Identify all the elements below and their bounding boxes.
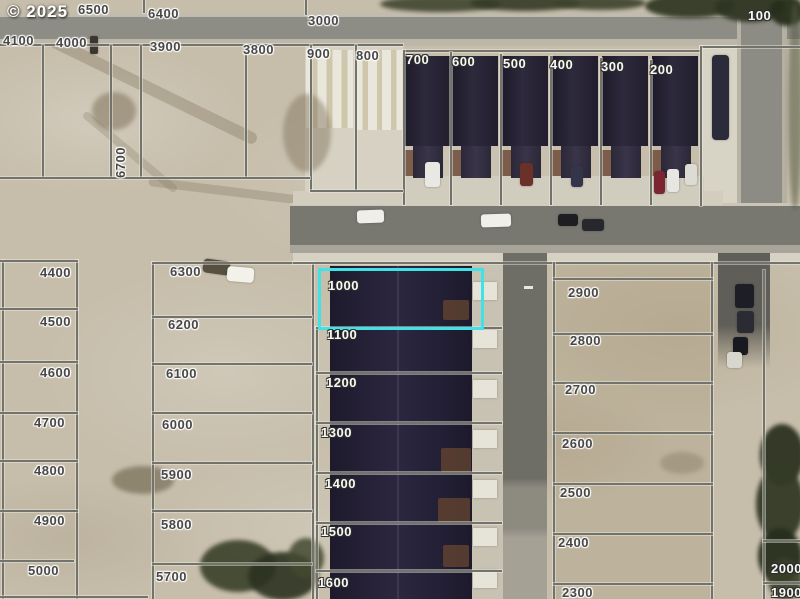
garage-roof bbox=[611, 146, 641, 178]
parcel-boundary-line bbox=[0, 510, 78, 512]
parcel-label-4500: 4500 bbox=[40, 315, 71, 328]
car bbox=[520, 163, 533, 186]
vegetation bbox=[788, 2, 800, 210]
garage-pad bbox=[473, 570, 497, 588]
car bbox=[571, 166, 583, 187]
parcel-label-900: 900 bbox=[307, 47, 330, 60]
parcel-label-6400: 6400 bbox=[148, 7, 179, 20]
parcel-label-5800: 5800 bbox=[161, 518, 192, 531]
car bbox=[727, 352, 742, 368]
parcel-boundary-line bbox=[763, 540, 800, 542]
aerial-parcel-map: 6500640030001004100400039003800900800700… bbox=[0, 0, 800, 599]
yard-dirt-patch bbox=[438, 498, 470, 524]
road-center-vertical bbox=[503, 253, 547, 599]
parcel-boundary-line bbox=[293, 262, 800, 264]
parcel-label-3900: 3900 bbox=[150, 40, 181, 53]
parcel-boundary-line bbox=[152, 412, 312, 414]
car bbox=[558, 214, 578, 226]
garage-pad bbox=[473, 480, 497, 498]
parcel-label-400: 400 bbox=[550, 58, 573, 71]
parcel-boundary-line bbox=[0, 260, 78, 262]
car bbox=[667, 169, 679, 192]
garage-pad bbox=[473, 528, 497, 546]
yard-dirt-patch bbox=[601, 150, 611, 176]
parcel-label-1000: 1000 bbox=[328, 279, 359, 292]
parcel-label-2500: 2500 bbox=[560, 486, 591, 499]
parcel-boundary-line bbox=[305, 0, 307, 15]
parcel-label-1400: 1400 bbox=[325, 477, 356, 490]
parcel-label-500: 500 bbox=[503, 57, 526, 70]
parcel-label-6700: 6700 bbox=[114, 147, 127, 178]
car bbox=[654, 171, 665, 194]
car bbox=[737, 311, 754, 333]
garage-pad bbox=[473, 330, 497, 348]
parcel-boundary-line bbox=[310, 45, 312, 190]
vegetation bbox=[556, 0, 646, 10]
parcel-boundary-line bbox=[310, 190, 403, 192]
parcel-label-4000: 4000 bbox=[56, 36, 87, 49]
parcel-boundary-line bbox=[140, 45, 142, 177]
yard-dirt-patch bbox=[501, 150, 511, 176]
parcel-label-1300: 1300 bbox=[321, 426, 352, 439]
parcel-boundary-line bbox=[600, 58, 602, 205]
yard-dirt-patch bbox=[441, 448, 471, 472]
parcel-label-6200: 6200 bbox=[168, 318, 199, 331]
parcel-boundary-line bbox=[553, 432, 713, 434]
yard-dirt-patch bbox=[443, 545, 469, 567]
parcel-boundary-line bbox=[0, 596, 148, 598]
parcel-boundary-line bbox=[0, 308, 78, 310]
parcel-boundary-line bbox=[0, 177, 310, 179]
parcel-boundary-line bbox=[355, 45, 357, 190]
parcel-label-200: 200 bbox=[650, 63, 673, 76]
car bbox=[735, 284, 754, 308]
parcel-label-2000: 2000 bbox=[771, 562, 800, 575]
townhouse-roof bbox=[404, 56, 450, 146]
parcel-label-6300: 6300 bbox=[170, 265, 201, 278]
parcel-label-1200: 1200 bbox=[326, 376, 357, 389]
parcel-boundary-line bbox=[500, 54, 502, 205]
car bbox=[357, 210, 384, 224]
parcel-boundary-line bbox=[763, 582, 800, 584]
parcel-boundary-line bbox=[2, 260, 4, 599]
parcel-boundary-line bbox=[700, 46, 702, 206]
parcel-boundary-line bbox=[553, 278, 713, 280]
parcel-label-2700: 2700 bbox=[565, 383, 596, 396]
parcel-label-4700: 4700 bbox=[34, 416, 65, 429]
parcel-label-6000: 6000 bbox=[162, 418, 193, 431]
parcel-label-5000: 5000 bbox=[28, 564, 59, 577]
parcel-boundary-line bbox=[143, 0, 145, 13]
parcel-label-5700: 5700 bbox=[156, 570, 187, 583]
vegetation bbox=[92, 92, 136, 130]
parcel-label-2300: 2300 bbox=[562, 586, 593, 599]
parcel-boundary-line bbox=[650, 60, 652, 205]
garage-roof bbox=[461, 146, 491, 178]
truck bbox=[226, 266, 254, 283]
parcel-boundary-line bbox=[316, 327, 318, 599]
parcel-boundary-line bbox=[152, 563, 312, 565]
car bbox=[481, 213, 511, 227]
parcel-label-5900: 5900 bbox=[161, 468, 192, 481]
parcel-boundary-line bbox=[152, 510, 312, 512]
parcel-label-4900: 4900 bbox=[34, 514, 65, 527]
parcel-boundary-line bbox=[152, 363, 312, 365]
parcel-boundary-line bbox=[403, 50, 700, 52]
parked-vehicle bbox=[712, 55, 729, 140]
parcel-label-2400: 2400 bbox=[558, 536, 589, 549]
parcel-boundary-line bbox=[0, 460, 78, 462]
copyright-watermark: © 2025 bbox=[7, 2, 68, 22]
parcel-label-1500: 1500 bbox=[321, 525, 352, 538]
parcel-label-600: 600 bbox=[452, 55, 475, 68]
parcel-boundary-line bbox=[312, 262, 314, 599]
parcel-boundary-line bbox=[763, 270, 765, 599]
car bbox=[425, 162, 440, 187]
car bbox=[582, 219, 604, 231]
townhouse-roof bbox=[452, 56, 498, 146]
parcel-label-4100: 4100 bbox=[3, 34, 34, 47]
parcel-boundary-line bbox=[152, 462, 312, 464]
parcel-boundary-line bbox=[316, 422, 502, 424]
parcel-label-6100: 6100 bbox=[166, 367, 197, 380]
parcel-boundary-line bbox=[403, 50, 405, 205]
parcel-label-6500: 6500 bbox=[78, 3, 109, 16]
parcel-label-3000: 3000 bbox=[308, 14, 339, 27]
yard-dirt-patch bbox=[551, 150, 561, 176]
parcel-boundary-line bbox=[0, 361, 78, 363]
parcel-boundary-line bbox=[245, 45, 247, 177]
parcel-boundary-line bbox=[316, 570, 502, 572]
garage-pad bbox=[473, 430, 497, 448]
garage-pad bbox=[473, 380, 497, 398]
parcel-label-1100: 1100 bbox=[327, 328, 357, 341]
parcel-boundary-line bbox=[553, 262, 555, 599]
car bbox=[685, 164, 697, 185]
parcel-boundary-line bbox=[0, 560, 74, 562]
vegetation bbox=[288, 538, 324, 578]
parcel-boundary-line bbox=[711, 262, 713, 599]
parcel-label-4400: 4400 bbox=[40, 266, 71, 279]
road-center-lane-dash bbox=[524, 286, 533, 289]
parcel-label-2800: 2800 bbox=[570, 334, 601, 347]
parcel-label-4600: 4600 bbox=[40, 366, 71, 379]
yard-dirt-patch bbox=[451, 150, 461, 176]
parcel-boundary-line bbox=[76, 260, 78, 599]
parcel-boundary-line bbox=[110, 45, 112, 177]
parcel-boundary-line bbox=[42, 45, 44, 177]
vegetation bbox=[660, 452, 704, 474]
parcel-boundary-line bbox=[152, 262, 154, 599]
parcel-boundary-line bbox=[316, 372, 502, 374]
parcel-label-700: 700 bbox=[406, 53, 429, 66]
parcel-label-300: 300 bbox=[601, 60, 624, 73]
parcel-label-2600: 2600 bbox=[562, 437, 593, 450]
parcel-boundary-line bbox=[450, 52, 452, 205]
parcel-label-3800: 3800 bbox=[243, 43, 274, 56]
parcel-label-4800: 4800 bbox=[34, 464, 65, 477]
parcel-label-100: 100 bbox=[748, 9, 771, 22]
parcel-boundary-line bbox=[0, 412, 78, 414]
vegetation bbox=[283, 94, 331, 172]
parcel-boundary-line bbox=[700, 46, 800, 48]
parcel-boundary-line bbox=[316, 472, 502, 474]
parcel-label-1600: 1600 bbox=[318, 576, 349, 589]
parcel-boundary-line bbox=[550, 56, 552, 205]
parcel-label-1900: 1900 bbox=[771, 586, 800, 599]
parcel-label-800: 800 bbox=[356, 49, 379, 62]
parcel-label-2900: 2900 bbox=[568, 286, 599, 299]
